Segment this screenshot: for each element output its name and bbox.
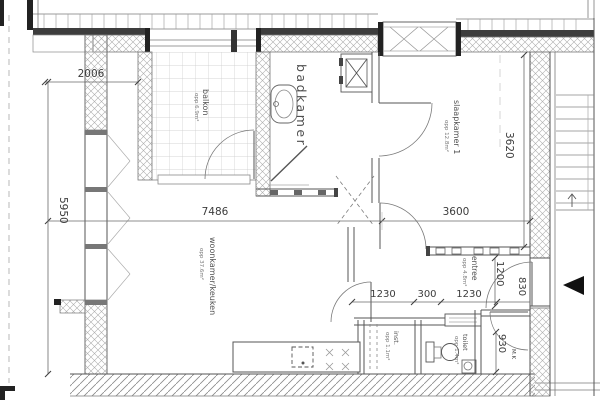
area-inst: opp 1.1m²	[384, 332, 391, 360]
shower-corner	[268, 146, 309, 185]
top-wall-window	[378, 22, 461, 56]
bathroom-door	[379, 103, 432, 156]
area-toilet: opp 1.4m²	[453, 336, 460, 364]
top-exterior-wall	[33, 22, 594, 56]
dim-930: 930	[496, 334, 507, 353]
casement-window-symbols	[108, 135, 130, 300]
label-toilet: toilet	[461, 334, 469, 351]
dim-1230-b: 1230	[456, 289, 481, 300]
label-balkon: balkon	[201, 89, 210, 116]
label-inst: inst.	[392, 331, 400, 345]
entrance-arrow-icon	[563, 276, 584, 295]
shaft-x-icon	[339, 54, 372, 92]
dim-5950: 5950	[57, 197, 69, 224]
bedroom-door	[380, 203, 426, 249]
dim-7486: 7486	[202, 206, 229, 218]
bottom-exterior-wall	[70, 374, 600, 396]
label-woonkamer: woonkamer/keuken	[208, 237, 217, 315]
label-meterkast: M.K	[510, 349, 516, 359]
bathroom	[256, 52, 432, 226]
label-entree: entree	[470, 256, 479, 281]
floor-plan-sheet: 2006 7486 3600 5950 3620 1230 300 1230 1…	[0, 0, 600, 400]
area-slaapkamer: opp 12.8m²	[443, 120, 450, 152]
dim-830: 830	[516, 277, 527, 296]
corner-basin-fixture	[462, 360, 476, 373]
duct-dashed-x-icon	[336, 176, 374, 226]
dim-3620: 3620	[503, 132, 515, 159]
area-balkon: opp 6.9m²	[193, 93, 200, 121]
dim-1230-a: 1230	[370, 289, 395, 300]
washbasin-fixture	[271, 85, 297, 123]
floor-plan-drawing: 2006 7486 3600 5950 3620 1230 300 1230 1…	[0, 0, 600, 400]
label-slaapkamer: slaapkamer 1	[452, 100, 461, 154]
balcony-opening-glazing	[145, 28, 261, 52]
dim-3600: 3600	[443, 206, 470, 218]
label-badkamer: badkamer	[294, 64, 309, 147]
right-exterior-wall	[530, 18, 594, 396]
staircase	[556, 95, 594, 210]
dim-1200: 1200	[494, 261, 505, 286]
dim-2006: 2006	[78, 68, 105, 80]
area-woonkamer: opp 37.6m²	[198, 248, 205, 280]
dim-300: 300	[417, 289, 436, 300]
area-entree: opp 4.8m²	[461, 258, 468, 286]
stair-direction-arrow-icon	[568, 194, 576, 207]
kitchen-counter	[233, 342, 360, 372]
